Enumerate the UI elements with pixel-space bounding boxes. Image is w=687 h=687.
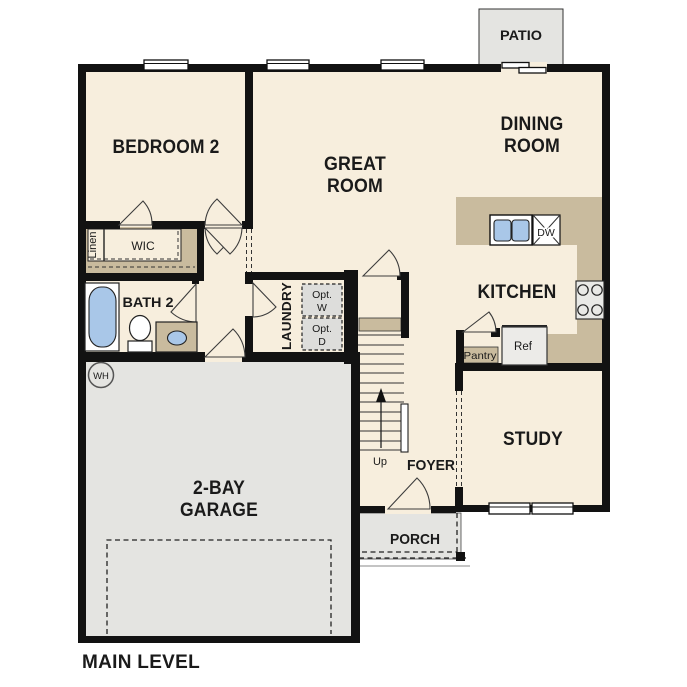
wall-laundry-left-1: [245, 280, 253, 284]
pantry-label: Pantry: [464, 350, 498, 362]
wic-label: WIC: [131, 239, 155, 253]
window-study-right: [532, 503, 573, 514]
kitchen-bottom-counter: [547, 334, 602, 367]
up-label: Up: [373, 456, 387, 468]
bath2-label: BATH 2: [123, 294, 174, 310]
wall-study-left-1: [455, 369, 463, 392]
wall-garage-right: [351, 362, 360, 643]
plan-level-title: MAIN LEVEL: [82, 652, 200, 673]
wall-bath-right-stub: [192, 273, 199, 284]
patio-label: PATIO: [500, 28, 542, 43]
kitchen-label: KITCHEN: [478, 282, 557, 303]
study-label: STUDY: [503, 429, 563, 450]
window-great-room-right: [381, 60, 424, 70]
wall-laundry-stairs: [344, 270, 358, 364]
wall-stairs-right: [401, 272, 409, 338]
opt-washer-label-1: Opt.: [312, 289, 332, 301]
floor-plan-drawing: PATIO DINING ROOM GREAT ROOM BEDROOM 2 W…: [0, 0, 687, 687]
wall-garage-top-2: [242, 352, 360, 362]
stair-railing: [401, 404, 408, 452]
refrigerator-label: Ref: [514, 341, 533, 353]
wall-bedroom-right: [245, 64, 253, 229]
great-room-label-1: GREAT: [324, 154, 386, 175]
bathtub: [85, 283, 119, 351]
porch-label: PORCH: [390, 531, 440, 548]
foyer-label: FOYER: [407, 457, 455, 474]
toilet: [128, 316, 152, 353]
laundry-label: LAUNDRY: [279, 282, 294, 350]
wall-garage-bottom: [78, 636, 360, 643]
water-heater-label: WH: [93, 371, 109, 382]
linen-label: Linen: [87, 232, 99, 259]
window-great-room-left: [267, 60, 309, 70]
wall-study-left-2: [455, 486, 463, 507]
wall-hall-left: [197, 221, 204, 281]
opt-dryer-label-1: Opt.: [312, 323, 332, 335]
dining-room-label-1: DINING: [501, 114, 564, 135]
opt-washer-label-2: W: [317, 302, 327, 314]
bath-vanity: [156, 322, 197, 352]
wall-laundry-top: [245, 272, 358, 280]
stove: [576, 281, 604, 319]
wall-bath-top: [78, 273, 200, 281]
stair-landing-step: [359, 318, 401, 331]
patio-sliding-door: [501, 62, 547, 73]
cased-opening-hall-gap: [244, 229, 254, 272]
wall-bedroom-bottom-3: [242, 221, 253, 229]
floor-plan-page: PATIO DINING ROOM GREAT ROOM BEDROOM 2 W…: [0, 0, 687, 687]
wall-garage-top-1: [78, 352, 205, 362]
dining-room-label-2: ROOM: [504, 136, 560, 157]
wall-bedroom-bottom-1: [86, 221, 120, 229]
garage-label-2: GARAGE: [180, 500, 258, 521]
dishwasher-label: DW: [537, 227, 555, 239]
bedroom2-label: BEDROOM 2: [113, 137, 220, 158]
opt-dryer-label-2: D: [318, 336, 326, 348]
great-room-label-2: ROOM: [327, 176, 383, 197]
window-study-left: [489, 503, 530, 514]
window-bedroom: [144, 60, 188, 70]
garage-label-1: 2-BAY: [193, 478, 245, 499]
kitchen-sink: [490, 215, 532, 245]
porch-post: [456, 552, 465, 561]
